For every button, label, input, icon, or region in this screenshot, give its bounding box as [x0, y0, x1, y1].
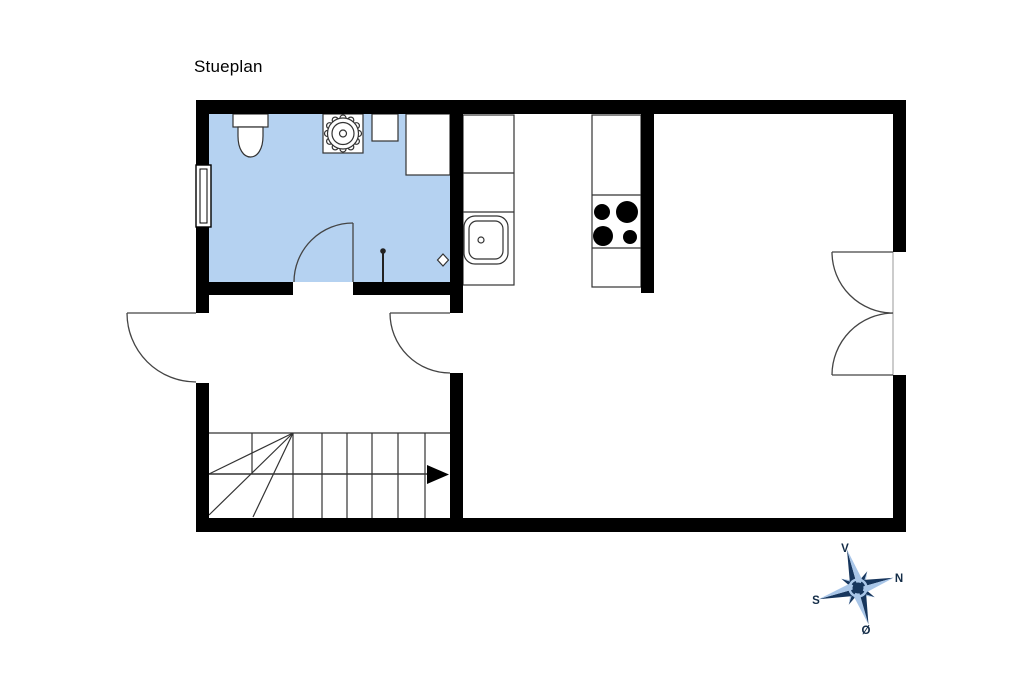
cabinet [372, 114, 398, 141]
toilet-tank [233, 114, 268, 127]
stairs-direction-arrow [427, 465, 449, 484]
winder-line [253, 433, 293, 517]
wall-bathroom [353, 282, 463, 295]
wall-right [893, 375, 906, 532]
compass-rose: V N S Ø [808, 539, 904, 637]
wall-left [196, 383, 209, 532]
kitchen-counter-stove [592, 115, 641, 287]
wall-bottom [196, 518, 906, 532]
kitchen-counter-sink [463, 115, 514, 285]
wall-kitchen [641, 113, 654, 293]
living-room-double-door [832, 252, 893, 375]
floorplan-drawing: V N S Ø [0, 0, 1024, 682]
corner-cabinet [406, 114, 450, 175]
stairs [209, 433, 450, 518]
compass-label-west: V [841, 543, 849, 555]
floorplan-page: Stueplan [0, 0, 1024, 682]
compass-label-north: N [895, 573, 903, 585]
hallway-kitchen-door [390, 313, 450, 373]
wall-right [893, 100, 906, 252]
wall-top [196, 100, 906, 114]
window [196, 165, 211, 227]
wall-center [450, 373, 463, 518]
wall-left [196, 227, 209, 313]
winder-line [209, 433, 293, 474]
compass-label-east: Ø [862, 625, 871, 637]
kitchen-sink [464, 216, 508, 264]
drum-center [340, 130, 347, 137]
wall-bathroom [209, 282, 293, 295]
entrance-door [127, 313, 196, 382]
compass-label-south: S [812, 595, 820, 607]
toilet-bowl [238, 127, 263, 157]
wall-left [196, 100, 209, 165]
